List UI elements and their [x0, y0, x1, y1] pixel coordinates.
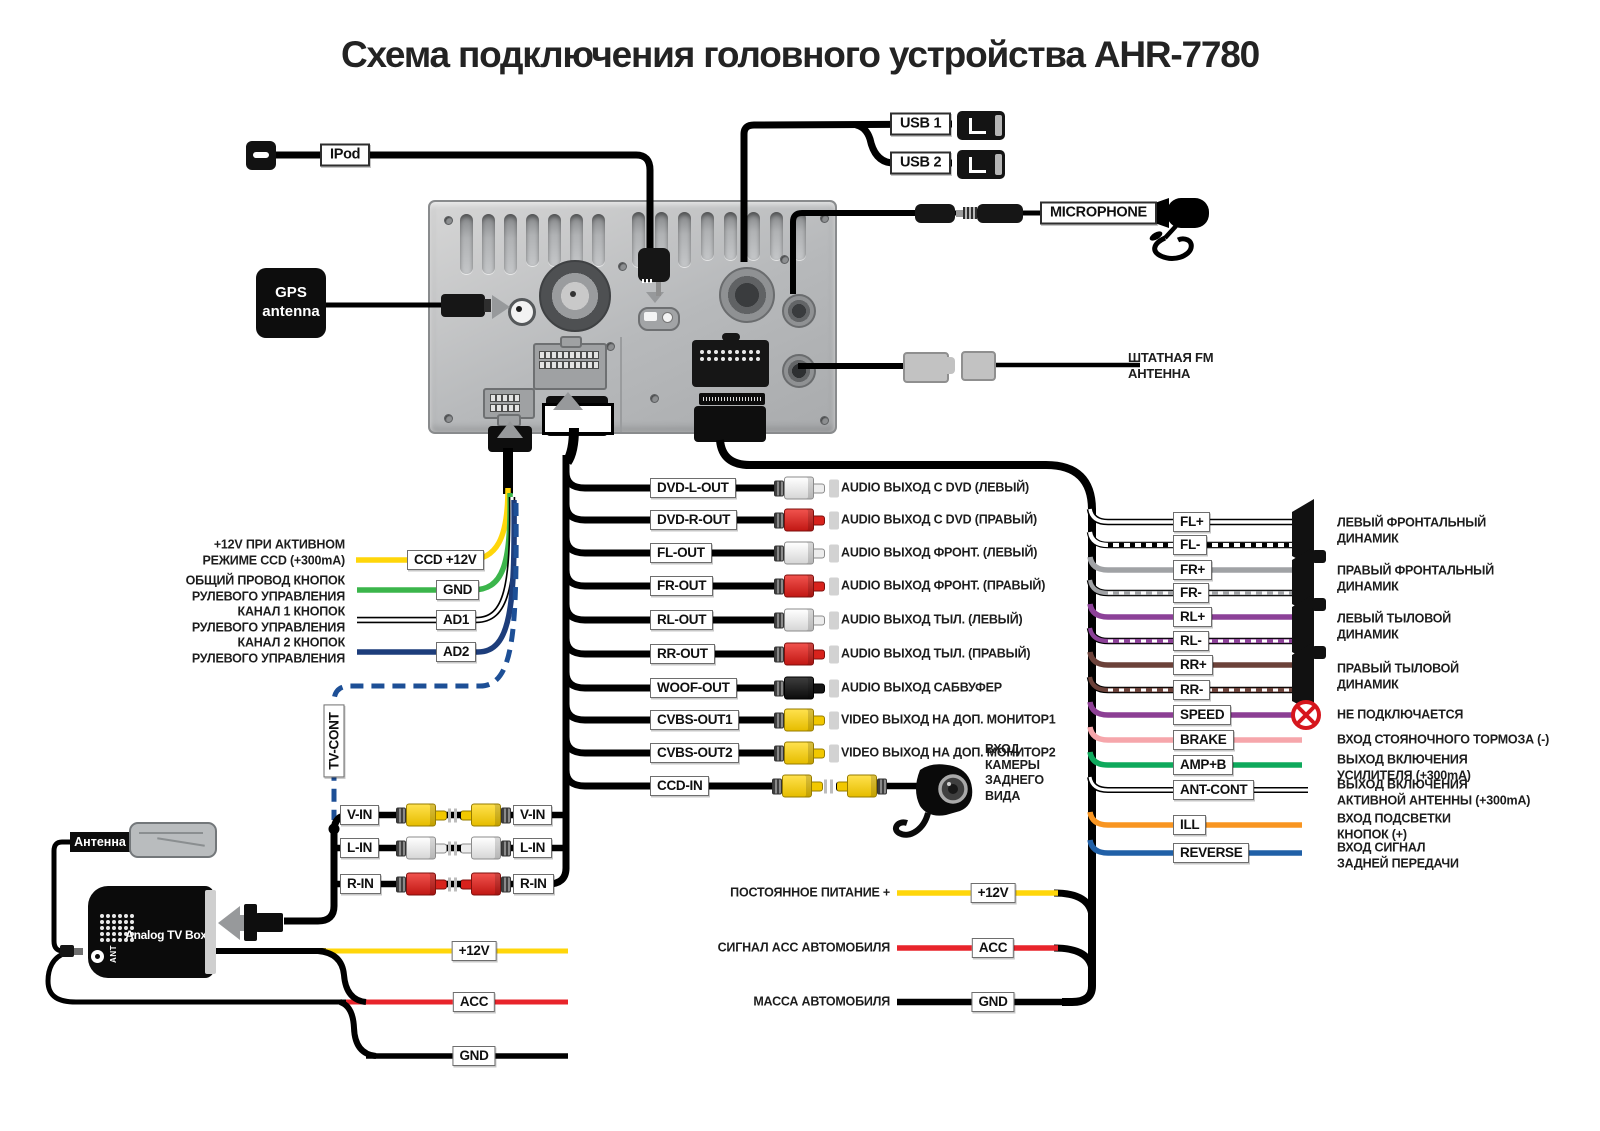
wire-label: AMP+B	[1173, 755, 1233, 775]
microphone-label: MICROPHONE	[1040, 202, 1157, 225]
wire-desc: +12V ПРИ АКТИВНОМ РЕЖИМЕ CCD (+300mA)	[145, 538, 345, 569]
wire-label: V-IN	[340, 805, 379, 825]
wire-label: AD1	[436, 610, 476, 630]
connector-gap	[824, 779, 835, 793]
rca-socket-red	[460, 873, 511, 896]
wiring-diagram: Схема подключения головного устройства A…	[0, 0, 1600, 1131]
wire-label: FL-	[1173, 535, 1207, 555]
rca-plug-yellow	[774, 709, 839, 732]
not-connected-icon	[1293, 702, 1319, 728]
usb2-label: USB 2	[890, 152, 951, 175]
gps-plug-tip	[484, 299, 491, 312]
fm-connector-b	[961, 351, 996, 381]
wire-label: RR-OUT	[650, 644, 715, 664]
rear-camera-icon	[896, 764, 972, 835]
tv-cont-text: TV-CONT	[327, 712, 342, 769]
wire-desc: ВЫХОД ВКЛЮЧЕНИЯ АКТИВНОЙ АНТЕННЫ (+300mA…	[1337, 778, 1530, 809]
wire-desc: AUDIO ВЫХОД САБВУФЕР	[841, 680, 1002, 696]
usb-symbol	[969, 118, 986, 134]
wire-label: GND	[971, 992, 1014, 1012]
wire-label: RL-	[1173, 631, 1209, 651]
r-in-rca-pair	[396, 873, 511, 896]
tvbox-name: Analog TV Box	[122, 928, 210, 942]
tv-cont-label: TV-CONT	[324, 704, 345, 777]
wire-label: ACC	[453, 992, 495, 1012]
rca-socket-yellow	[836, 775, 887, 798]
wire-desc: ВХОД СТОЯНОЧНОГО ТОРМОЗА (-)	[1337, 732, 1549, 748]
wire-desc: МАССА АВТОМОБИЛЯ	[640, 994, 890, 1010]
rca-socket-white	[460, 837, 511, 860]
wire-label: REVERSE	[1173, 843, 1249, 863]
wire-label: ILL	[1173, 815, 1206, 835]
v-in-rca-pair	[396, 804, 511, 827]
rca-plug-yellow	[396, 804, 447, 827]
tvbox-connector-edge	[205, 890, 216, 974]
usb1-plug-icon	[957, 111, 1005, 140]
wire-label: CVBS-OUT1	[650, 710, 739, 730]
rca-plug-white	[396, 837, 447, 860]
wire-desc: ВХОД СИГНАЛ ЗАДНЕЙ ПЕРЕДАЧИ	[1337, 841, 1459, 872]
rca-plug-black	[774, 677, 839, 700]
wire-label: R-IN	[513, 874, 554, 894]
wire-label: ACC	[972, 938, 1014, 958]
fm-antenna-text: ШТАТНАЯ FM АНТЕННА	[1128, 350, 1213, 382]
wire-desc: ВХОД ПОДСВЕТКИ КНОПОК (+)	[1337, 812, 1451, 843]
wire-desc: AUDIO ВЫХОД ФРОНТ. (ЛЕВЫЙ)	[841, 545, 1037, 561]
rca-plug-red	[774, 509, 839, 532]
antenna-label: Антенна	[70, 832, 130, 852]
speaker-connectors	[1292, 499, 1326, 713]
antenna-line	[139, 832, 203, 834]
usb-cap	[995, 115, 1002, 136]
usb-symbol	[969, 157, 986, 173]
rca-plug-yellow	[772, 775, 823, 798]
rca-plug-red	[774, 575, 839, 598]
fm-connector-a-neck	[943, 357, 955, 374]
wire-label: V-IN	[513, 805, 552, 825]
wire-label: RR-	[1173, 680, 1210, 700]
gps-antenna-box: GPS antenna	[256, 268, 326, 338]
wire-label: ANT-CONT	[1173, 780, 1254, 800]
wire-desc: ОБЩИЙ ПРОВОД КНОПОК РУЛЕВОГО УПРАВЛЕНИЯ	[145, 574, 345, 605]
mic-jack-male	[977, 204, 1023, 223]
wire-desc: СИГНАЛ ACC АВТОМОБИЛЯ	[640, 940, 890, 956]
mic-jack-female	[915, 204, 955, 223]
wire-label: L-IN	[340, 838, 379, 858]
wire-desc: AUDIO ВЫХОД С DVD (ПРАВЫЙ)	[841, 512, 1037, 528]
wire-label: FR-OUT	[650, 576, 713, 596]
wire-label: GND	[452, 1046, 495, 1066]
wire-desc: КАНАЛ 2 КНОПОК РУЛЕВОГО УПРАВЛЕНИЯ	[145, 636, 345, 667]
ant-input-label: ANT	[109, 945, 118, 963]
plug-pin	[656, 282, 661, 296]
mic-jack-knurl	[963, 207, 977, 219]
ant-input-jack	[91, 950, 104, 963]
microphone-cable	[793, 213, 1148, 294]
wire-desc: НЕ ПОДКЛЮЧАЕТСЯ	[1337, 707, 1463, 723]
wire-desc: AUDIO ВЫХОД ТЫЛ. (ЛЕВЫЙ)	[841, 612, 1022, 628]
analog-tv-box: ANT Analog TV Box	[88, 886, 214, 978]
l-in-rca-pair	[396, 837, 511, 860]
speaker-desc: ПРАВЫЙ ФРОНТАЛЬНЫЙ ДИНАМИК	[1337, 564, 1494, 595]
wire-label: R-IN	[340, 874, 381, 894]
camera-desc: ВХОД КАМЕРЫ ЗАДНЕГО ВИДА	[985, 742, 1044, 804]
rca-plug-white	[774, 542, 839, 565]
wire-label: RL+	[1173, 607, 1212, 627]
wire-label: WOOF-OUT	[650, 678, 737, 698]
wire-desc: VIDEO ВЫХОД НА ДОП. МОНИТОР1	[841, 712, 1056, 728]
mic-jack-pin	[956, 210, 963, 217]
wire-label: L-IN	[513, 838, 552, 858]
usb-cable	[744, 124, 952, 262]
wire-label: +12V	[452, 941, 497, 961]
wire-desc: AUDIO ВЫХОД С DVD (ЛЕВЫЙ)	[841, 480, 1029, 496]
wire-label: RR+	[1173, 655, 1213, 675]
usb-cap	[995, 154, 1002, 175]
rca-plug-white	[774, 609, 839, 632]
speaker-desc: ЛЕВЫЙ ФРОНТАЛЬНЫЙ ДИНАМИК	[1337, 516, 1486, 547]
ipod-cable	[262, 155, 650, 252]
wire-label: DVD-L-OUT	[650, 478, 736, 498]
tvbox-plug-b	[256, 913, 283, 932]
connector-gap	[448, 808, 459, 822]
wire-label: CVBS-OUT2	[650, 743, 739, 763]
wire-desc: AUDIO ВЫХОД ФРОНТ. (ПРАВЫЙ)	[841, 578, 1045, 594]
wire-label: FR-	[1173, 583, 1209, 603]
rca-socket-yellow	[460, 804, 511, 827]
ipod-35mm-plug	[638, 248, 670, 282]
plug-contacts	[642, 279, 654, 283]
wire-label: FL-OUT	[650, 543, 712, 563]
wire-label: BRAKE	[1173, 730, 1234, 750]
ant-plug	[60, 945, 74, 957]
rca-plug-white	[774, 477, 839, 500]
speaker-desc: ЛЕВЫЙ ТЫЛОВОЙ ДИНАМИК	[1337, 612, 1451, 643]
wire-label: +12V	[971, 883, 1016, 903]
connector-gap	[448, 841, 459, 855]
rca-plug-red	[396, 873, 447, 896]
wire-desc: ПОСТОЯННОЕ ПИТАНИЕ +	[640, 885, 890, 901]
wire-label: CCD +12V	[407, 550, 484, 570]
wire-label: SPEED	[1173, 705, 1231, 725]
steering-harness	[329, 448, 517, 835]
speaker-desc: ПРАВЫЙ ТЫЛОВОЙ ДИНАМИК	[1337, 662, 1459, 693]
wire-label: FL+	[1173, 512, 1210, 532]
wire-label: DVD-R-OUT	[650, 510, 737, 530]
tv-antenna-icon	[129, 822, 217, 858]
antenna-line	[157, 837, 205, 846]
wire-label: GND	[436, 580, 479, 600]
usb1-label: USB 1	[890, 113, 951, 136]
connector-gap	[448, 877, 459, 891]
usb2-plug-icon	[957, 150, 1005, 179]
wire-label: RL-OUT	[650, 610, 713, 630]
rca-plug-red	[774, 643, 839, 666]
rca-plug-yellow	[774, 742, 839, 765]
wire-label: FR+	[1173, 560, 1212, 580]
ipod-label: IPod	[320, 144, 370, 167]
wire-desc: КАНАЛ 1 КНОПОК РУЛЕВОГО УПРАВЛЕНИЯ	[145, 605, 345, 636]
gps-plug	[441, 294, 485, 317]
wire-label: CCD-IN	[650, 776, 709, 796]
av-input-harness	[284, 815, 566, 921]
ccd-in-rca-pair	[772, 775, 887, 798]
wire-desc: AUDIO ВЫХОД ТЫЛ. (ПРАВЫЙ)	[841, 646, 1030, 662]
wire-label: AD2	[436, 642, 476, 662]
ant-plug-pin	[74, 948, 83, 955]
ipod-dock-connector-icon	[246, 141, 276, 170]
